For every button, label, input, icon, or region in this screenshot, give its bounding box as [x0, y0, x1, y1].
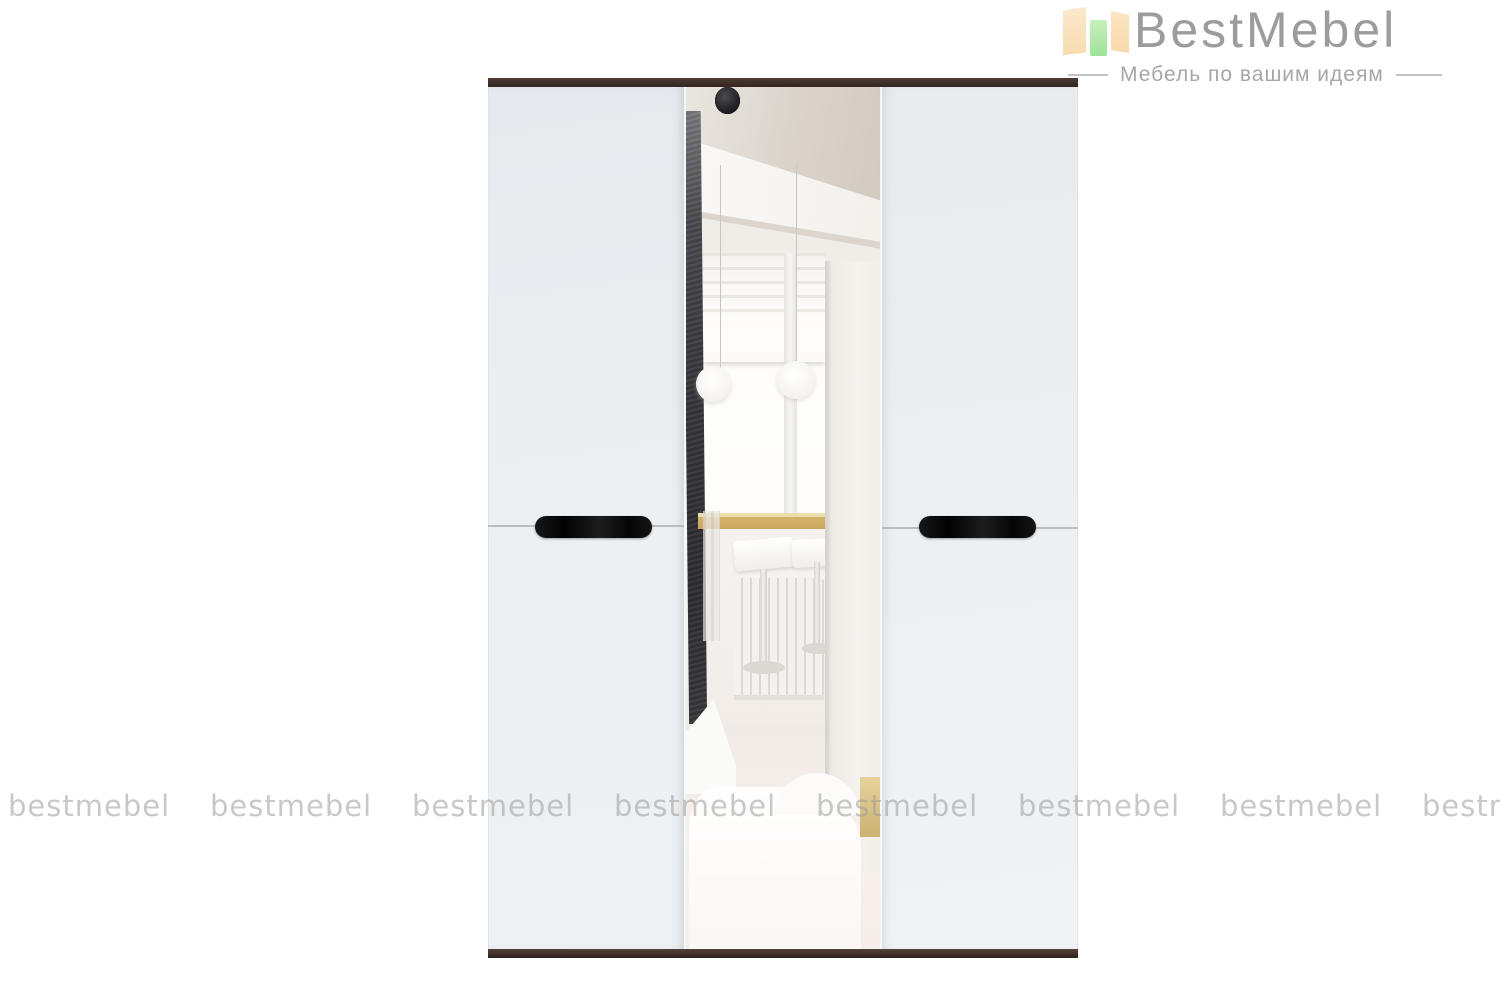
left-door-handle: [535, 516, 652, 538]
watermark-text: bestmebel: [8, 789, 170, 823]
watermark-text: bestmebel: [1422, 789, 1500, 823]
mirror-reflection-radiator: [734, 574, 824, 700]
mirror-reflection-glass-shelf: [703, 511, 720, 641]
mirror-reflection-blinds: [703, 253, 825, 315]
mirror-reflection-stool-seat: [733, 536, 795, 571]
watermark-text: bestmebel: [1018, 789, 1180, 823]
watermark-text: bestmebel: [412, 789, 574, 823]
wardrobe-product-photo: [488, 78, 1078, 958]
wardrobe-doors: [488, 87, 1078, 949]
logo-bar-right: [1111, 11, 1129, 53]
wardrobe-bottom-trim: [488, 949, 1078, 958]
mirror-reflection-sphere: [715, 87, 740, 114]
mirror-reflection-stool-post: [814, 562, 820, 647]
mirror-reflection-stool-post: [760, 569, 767, 667]
mirror-reflection-window-sill: [703, 353, 825, 362]
wardrobe-top-trim: [488, 78, 1078, 87]
mirror-reflection-globe-lamp: [696, 366, 731, 402]
logo-row: BestMebel: [1062, 3, 1434, 59]
tagline-right-rule: [1396, 74, 1442, 76]
mirror-reflection-stool-base: [743, 661, 785, 674]
brand-name: BestMebel: [1134, 3, 1397, 57]
mirror-reflection-lamp-cord: [720, 165, 721, 377]
logo-bar-left: [1063, 7, 1086, 55]
product-page-image: BestMebel Мебель по вашим идеям: [0, 0, 1500, 1000]
watermark-text: bestmebel: [1220, 789, 1382, 823]
watermark-text: bestmebel: [816, 789, 978, 823]
logo-bar-middle: [1090, 20, 1107, 56]
tagline-row: Мебель по вашим идеям: [1068, 63, 1434, 87]
bestmebel-logo: BestMebel Мебель по вашим идеям: [1062, 3, 1434, 87]
watermark-text: bestmebel: [614, 789, 776, 823]
mirror-reflection-lamp-cord: [796, 165, 797, 365]
bar-chart-logo-icon: [1062, 3, 1130, 59]
right-door-handle: [919, 516, 1036, 538]
brand-tagline: Мебель по вашим идеям: [1120, 63, 1384, 87]
tagline-left-rule: [1068, 74, 1108, 76]
watermark-text: bestmebel: [210, 789, 372, 823]
mirror-reflection-globe-lamp: [777, 361, 815, 399]
